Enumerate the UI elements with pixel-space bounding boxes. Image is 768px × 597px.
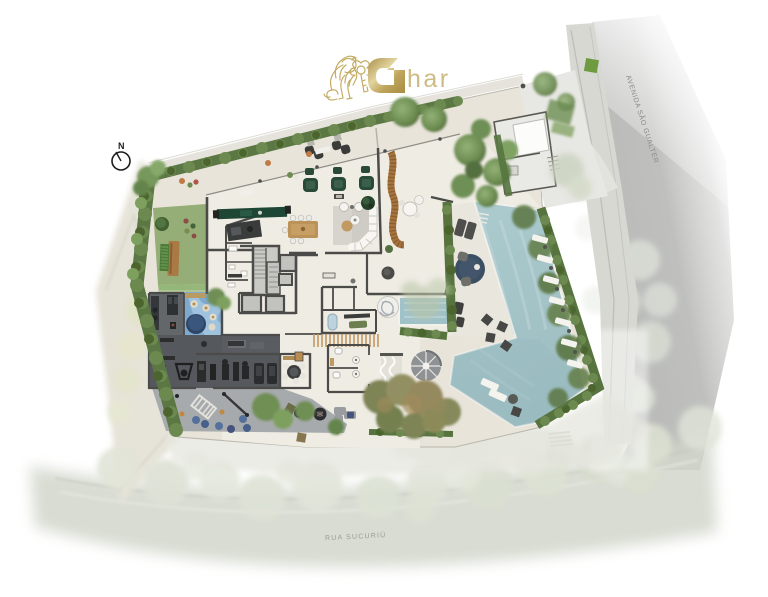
svg-text:har: har (407, 65, 451, 93)
svg-text:N: N (118, 141, 125, 151)
